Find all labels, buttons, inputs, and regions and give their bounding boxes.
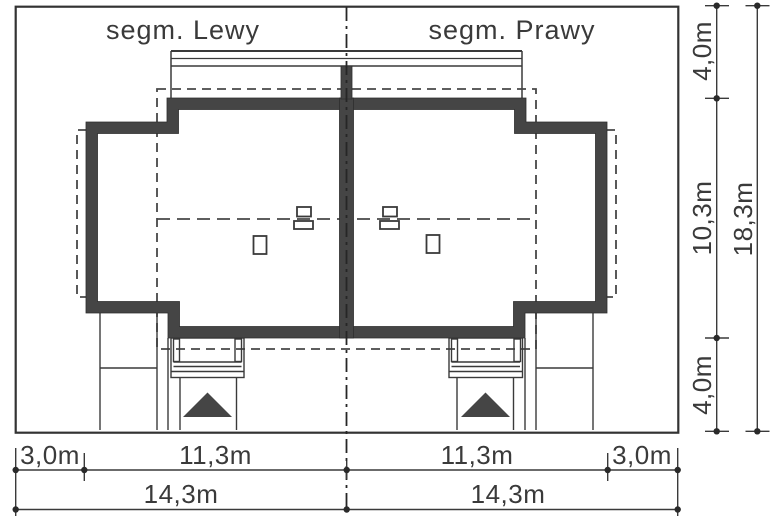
roof-eaves-left-bay bbox=[77, 130, 87, 297]
entrance-arrow-right bbox=[461, 393, 510, 418]
dimension-point bbox=[714, 2, 720, 8]
chimney bbox=[294, 221, 313, 229]
dimension-point bbox=[675, 467, 681, 473]
dim-label-top-depth: 4,0m bbox=[687, 21, 717, 81]
chimney bbox=[254, 236, 267, 254]
dim-label-left-offset: 3,0m bbox=[20, 440, 80, 470]
chimney bbox=[297, 207, 311, 217]
site-plan: segm. Lewy segm. Prawy 3,0m 11,3m 11,3m … bbox=[0, 0, 770, 524]
entrance-arrow-left bbox=[183, 393, 232, 418]
roof-eaves-right-bay bbox=[606, 130, 616, 297]
dim-label-right-total: 14,3m bbox=[471, 479, 546, 509]
dimension-point bbox=[344, 506, 350, 512]
site-plan-drawing: segm. Lewy segm. Prawy 3,0m 11,3m 11,3m … bbox=[0, 0, 770, 524]
dimension-point bbox=[81, 467, 87, 473]
chimney bbox=[383, 207, 397, 217]
right-segment-walls bbox=[347, 98, 607, 338]
dimension-point bbox=[754, 428, 760, 434]
driveway-left bbox=[100, 313, 157, 430]
dim-label-house-depth: 10,3m bbox=[687, 181, 717, 256]
dimension-point bbox=[344, 467, 350, 473]
dim-label-left-total: 14,3m bbox=[144, 479, 219, 509]
dim-label-left-width: 11,3m bbox=[179, 440, 252, 470]
dimension-point bbox=[714, 428, 720, 434]
dim-label-right-width: 11,3m bbox=[441, 440, 514, 470]
right-segment-label: segm. Prawy bbox=[428, 15, 595, 45]
left-segment-label: segm. Lewy bbox=[106, 15, 260, 45]
porch-post bbox=[452, 339, 458, 362]
left-segment-walls bbox=[86, 98, 346, 338]
dimension-point bbox=[605, 467, 611, 473]
porch-post bbox=[235, 339, 242, 362]
dimension-point bbox=[675, 506, 681, 512]
porch-post bbox=[514, 339, 521, 362]
dimension-point bbox=[13, 506, 19, 512]
chimney bbox=[427, 235, 440, 253]
dimension-point bbox=[714, 335, 720, 341]
dim-label-right-offset: 3,0m bbox=[612, 440, 672, 470]
porch-post bbox=[174, 339, 180, 362]
dimension-line-bottom-total bbox=[13, 506, 681, 512]
dimension-point bbox=[754, 2, 760, 8]
dim-label-bottom-depth: 4,0m bbox=[687, 355, 717, 415]
driveway-right bbox=[536, 313, 593, 430]
dimension-point bbox=[13, 467, 19, 473]
dim-label-total-depth: 18,3m bbox=[728, 182, 758, 257]
dimension-point bbox=[714, 95, 720, 101]
chimney bbox=[380, 221, 399, 229]
